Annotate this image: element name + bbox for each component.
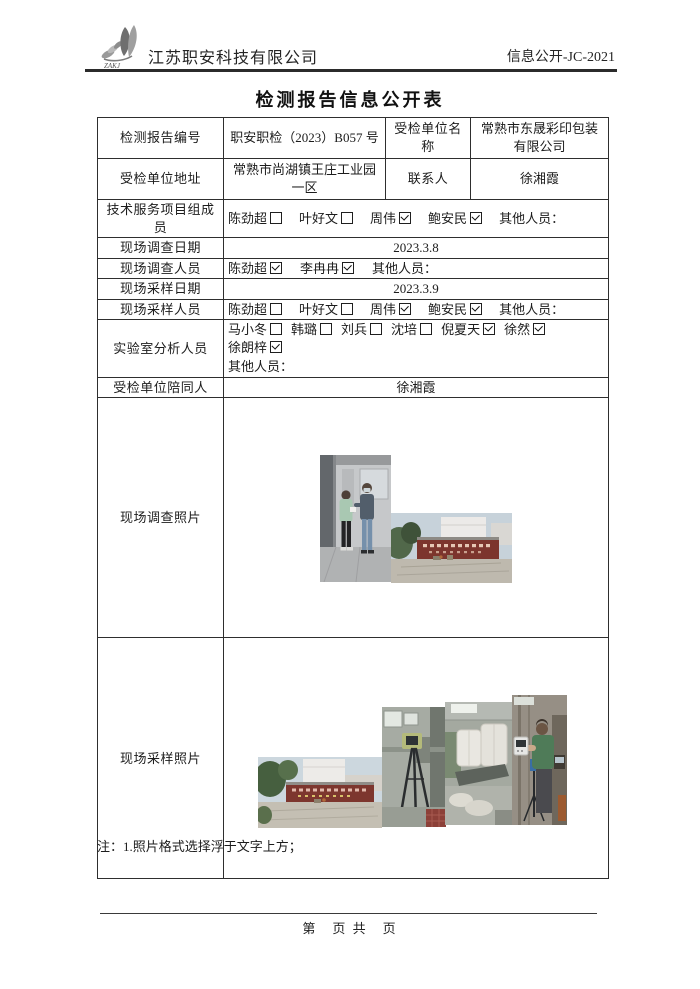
person-entry: 韩璐 bbox=[291, 321, 332, 339]
table-row: 现场采样人员 陈劲超叶好文周伟鲍安民其他人员： bbox=[98, 299, 609, 320]
survey-photos-cell bbox=[224, 398, 609, 638]
survey-photo-gate-sign bbox=[391, 513, 512, 583]
person-entry: 倪夏天 bbox=[441, 321, 495, 339]
person-entry: 陈劲超 bbox=[228, 210, 282, 228]
checkbox-empty[interactable] bbox=[420, 323, 432, 335]
survey-staff-people: 陈劲超李冉冉其他人员： bbox=[224, 258, 609, 279]
survey-staff-label: 现场调查人员 bbox=[98, 258, 224, 279]
person-entry: 马小冬 bbox=[228, 321, 282, 339]
others-label: 其他人员： bbox=[499, 211, 564, 226]
person-name: 陈劲超 bbox=[228, 261, 267, 276]
sampling-photo-gate-sign bbox=[258, 757, 382, 828]
checkbox-checked[interactable] bbox=[470, 212, 482, 224]
person-entry: 李冉冉 bbox=[300, 260, 354, 278]
table-row: 技术服务项目组成员 陈劲超叶好文周伟鲍安民其他人员： bbox=[98, 200, 609, 238]
table-row: 现场调查日期 2023.3.8 bbox=[98, 238, 609, 259]
table-row: 实验室分析人员 马小冬韩璐刘兵沈培倪夏天徐然徐朗梓其他人员： bbox=[98, 320, 609, 378]
sampling-staff-label: 现场采样人员 bbox=[98, 299, 224, 320]
person-name: 倪夏天 bbox=[441, 322, 480, 337]
document-page: ZAKJ 江苏职安科技有限公司 信息公开-JC-2021 检测报告信息公开表 检… bbox=[0, 0, 700, 989]
checkbox-checked[interactable] bbox=[533, 323, 545, 335]
checkbox-empty[interactable] bbox=[270, 323, 282, 335]
report-no-label: 检测报告编号 bbox=[98, 118, 224, 159]
report-info-table: 检测报告编号 职安职检（2023）B057 号 受检单位名称 常熟市东晟彩印包装… bbox=[97, 117, 609, 879]
survey-date-label: 现场调查日期 bbox=[98, 238, 224, 259]
person-name: 陈劲超 bbox=[228, 211, 267, 226]
checkbox-empty[interactable] bbox=[270, 303, 282, 315]
person-name: 韩璐 bbox=[291, 322, 317, 337]
person-name: 鲍安民 bbox=[428, 302, 467, 317]
person-entry: 周伟 bbox=[370, 210, 411, 228]
table-row: 受检单位陪同人 徐湘霞 bbox=[98, 377, 609, 398]
person-name: 刘兵 bbox=[341, 322, 367, 337]
table-row: 现场采样日期 2023.3.9 bbox=[98, 279, 609, 300]
page-number: 第 页 共 页 bbox=[0, 918, 700, 937]
company-name: 江苏职安科技有限公司 bbox=[148, 44, 318, 68]
person-entry: 鲍安民 bbox=[428, 301, 482, 319]
checkbox-empty[interactable] bbox=[341, 303, 353, 315]
header-rule bbox=[85, 69, 617, 72]
address-label: 受检单位地址 bbox=[98, 159, 224, 200]
person-name: 周伟 bbox=[370, 211, 396, 226]
table-row: 检测报告编号 职安职检（2023）B057 号 受检单位名称 常熟市东晟彩印包装… bbox=[98, 118, 609, 159]
lab-staff-people: 马小冬韩璐刘兵沈培倪夏天徐然徐朗梓其他人员： bbox=[224, 320, 609, 378]
person-entry: 刘兵 bbox=[341, 321, 382, 339]
sampling-staff-people: 陈劲超叶好文周伟鲍安民其他人员： bbox=[224, 299, 609, 320]
table-row: 现场调查人员 陈劲超李冉冉其他人员： bbox=[98, 258, 609, 279]
person-entry: 徐朗梓 bbox=[228, 339, 282, 357]
person-name: 徐朗梓 bbox=[228, 340, 267, 355]
team-label: 技术服务项目组成员 bbox=[98, 200, 224, 238]
table-row: 受检单位地址 常熟市尚湖镇王庄工业园一区 联系人 徐湘霞 bbox=[98, 159, 609, 200]
person-entry: 陈劲超 bbox=[228, 301, 282, 319]
survey-date-value: 2023.3.8 bbox=[224, 238, 609, 259]
unit-name-label: 受检单位名称 bbox=[386, 118, 471, 159]
person-entry: 叶好文 bbox=[299, 301, 353, 319]
checkbox-checked[interactable] bbox=[342, 262, 354, 274]
sampling-date-value: 2023.3.9 bbox=[224, 279, 609, 300]
accompany-label: 受检单位陪同人 bbox=[98, 377, 224, 398]
checkbox-empty[interactable] bbox=[270, 212, 282, 224]
others-label: 其他人员： bbox=[372, 261, 437, 276]
person-entry: 鲍安民 bbox=[428, 210, 482, 228]
report-no-value: 职安职检（2023）B057 号 bbox=[224, 118, 386, 159]
checkbox-checked[interactable] bbox=[270, 341, 282, 353]
document-code: 信息公开-JC-2021 bbox=[507, 46, 615, 66]
person-name: 李冉冉 bbox=[300, 261, 339, 276]
sampling-photo-bags bbox=[445, 702, 513, 825]
checkbox-checked[interactable] bbox=[399, 212, 411, 224]
checkbox-empty[interactable] bbox=[370, 323, 382, 335]
sampling-photo-tripod bbox=[382, 707, 446, 827]
person-name: 马小冬 bbox=[228, 322, 267, 337]
team-people: 陈劲超叶好文周伟鲍安民其他人员： bbox=[224, 200, 609, 238]
sampling-date-label: 现场采样日期 bbox=[98, 279, 224, 300]
survey-photos-label: 现场调查照片 bbox=[98, 398, 224, 638]
person-name: 叶好文 bbox=[299, 211, 338, 226]
checkbox-empty[interactable] bbox=[320, 323, 332, 335]
checkbox-empty[interactable] bbox=[341, 212, 353, 224]
table-row: 现场调查照片 bbox=[98, 398, 609, 638]
checkbox-checked[interactable] bbox=[270, 262, 282, 274]
person-entry: 徐然 bbox=[504, 321, 545, 339]
survey-photos-area bbox=[228, 399, 604, 636]
person-name: 周伟 bbox=[370, 302, 396, 317]
person-entry: 叶好文 bbox=[299, 210, 353, 228]
person-name: 鲍安民 bbox=[428, 211, 467, 226]
lab-staff-label: 实验室分析人员 bbox=[98, 320, 224, 378]
checkbox-checked[interactable] bbox=[399, 303, 411, 315]
person-name: 沈培 bbox=[391, 322, 417, 337]
others-label: 其他人员： bbox=[499, 302, 564, 317]
address-value: 常熟市尚湖镇王庄工业园一区 bbox=[224, 159, 386, 200]
checkbox-checked[interactable] bbox=[470, 303, 482, 315]
unit-name-value: 常熟市东晟彩印包装有限公司 bbox=[471, 118, 609, 159]
others-label: 其他人员： bbox=[228, 358, 604, 376]
page-title: 检测报告信息公开表 bbox=[0, 86, 700, 112]
person-entry: 沈培 bbox=[391, 321, 432, 339]
person-name: 陈劲超 bbox=[228, 302, 267, 317]
accompany-value: 徐湘霞 bbox=[224, 377, 609, 398]
person-entry: 陈劲超 bbox=[228, 260, 282, 278]
checkbox-checked[interactable] bbox=[483, 323, 495, 335]
person-entry: 周伟 bbox=[370, 301, 411, 319]
company-logo-icon: ZAKJ bbox=[98, 24, 146, 70]
sampling-photo-worker-instrument bbox=[512, 695, 567, 825]
footer-rule bbox=[100, 913, 597, 914]
footnote: 注：1.照片格式选择浮于文字上方； bbox=[97, 836, 302, 855]
survey-photo-interview bbox=[320, 455, 391, 582]
contact-value: 徐湘霞 bbox=[471, 159, 609, 200]
person-name: 叶好文 bbox=[299, 302, 338, 317]
contact-label: 联系人 bbox=[386, 159, 471, 200]
person-name: 徐然 bbox=[504, 322, 530, 337]
